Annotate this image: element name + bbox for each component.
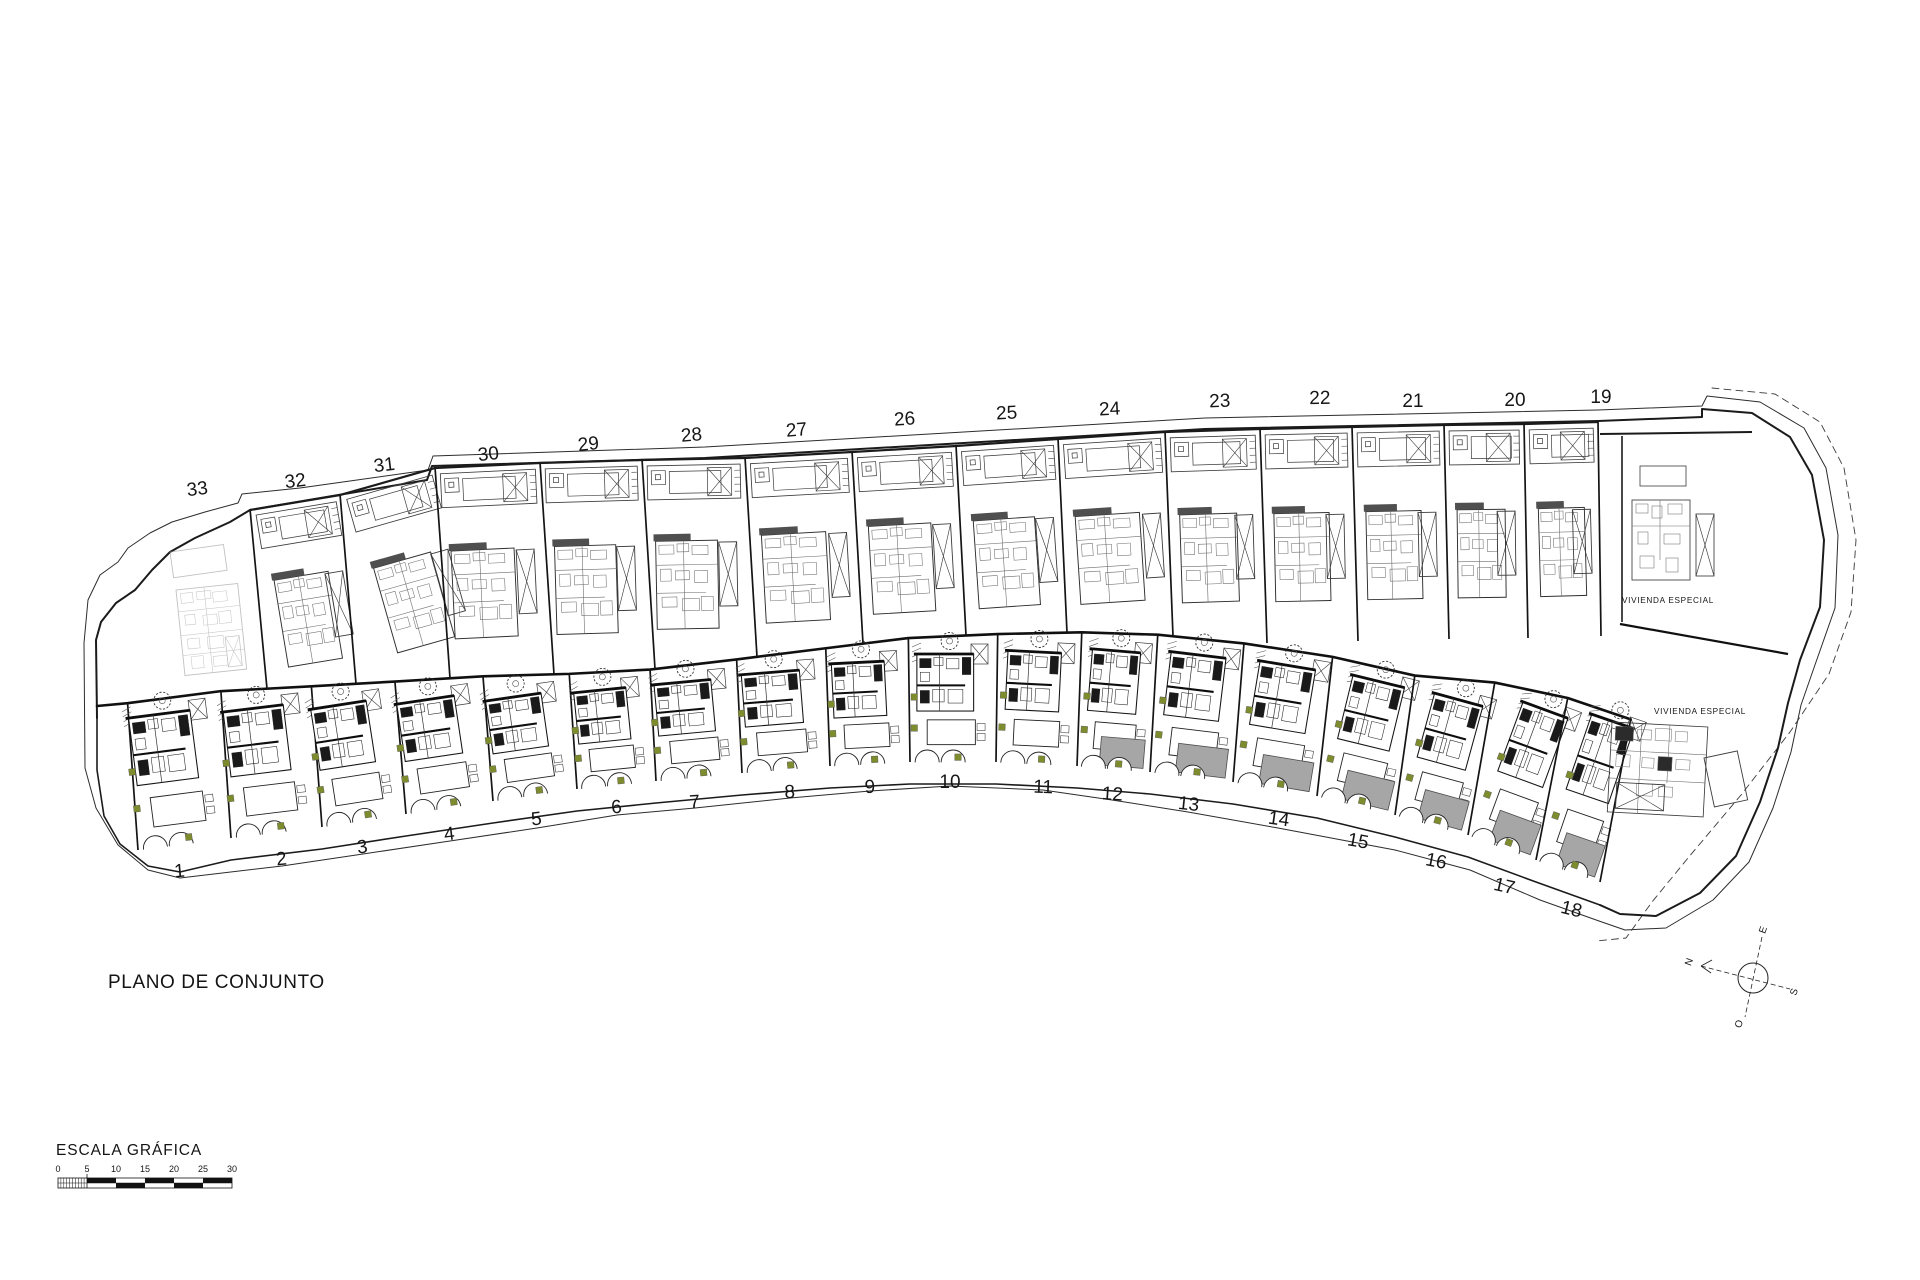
- pool-skimmer: [381, 775, 390, 783]
- room: [701, 596, 713, 610]
- line: [431, 549, 466, 615]
- house-glyph: [1272, 506, 1331, 602]
- plot-number-25: 25: [996, 402, 1018, 424]
- room: [1293, 516, 1304, 524]
- plot-number-33: 33: [186, 478, 210, 501]
- room: [1117, 543, 1131, 556]
- lower-plot-13: [1151, 630, 1242, 781]
- plot-divider: [1598, 421, 1601, 636]
- pool: [279, 510, 328, 539]
- plot-number-8: 8: [784, 782, 796, 804]
- spa: [261, 517, 277, 533]
- gate-marker: [911, 725, 918, 732]
- pool: [170, 544, 227, 577]
- room: [1198, 544, 1211, 553]
- entry-hatch: [1167, 645, 1176, 650]
- line: [430, 488, 436, 490]
- house-glyph: [866, 516, 936, 615]
- gate-marker: [277, 822, 284, 829]
- pool-terrace: [256, 502, 342, 549]
- plot-number-9: 9: [864, 777, 875, 798]
- terrace-outline: [1063, 438, 1162, 478]
- room: [909, 553, 923, 566]
- entry-hatch: [1089, 643, 1098, 648]
- shape: [553, 477, 558, 482]
- room: [1315, 569, 1326, 583]
- room: [962, 657, 971, 674]
- pool-terrace: [440, 469, 537, 507]
- pool-terrace: [1063, 438, 1162, 478]
- house-glyph: [971, 510, 1041, 609]
- gate-marker: [185, 833, 192, 840]
- tree-icon-center: [947, 638, 953, 644]
- terrace-outline: [440, 469, 537, 507]
- room: [1676, 759, 1691, 770]
- spa: [1361, 437, 1375, 451]
- spa: [651, 471, 665, 485]
- line: [331, 508, 337, 509]
- shape: [1537, 439, 1542, 444]
- room: [1398, 516, 1412, 525]
- gate-marker: [317, 786, 324, 793]
- room: [322, 627, 335, 643]
- gate-marker: [312, 753, 319, 760]
- line: [1366, 535, 1421, 536]
- hedge-arc: [142, 834, 167, 849]
- room: [872, 529, 888, 539]
- line: [181, 629, 243, 635]
- gate-marker: [1358, 797, 1366, 805]
- room: [494, 733, 505, 746]
- plot-divider: [1317, 657, 1333, 796]
- tree-icon-center: [1036, 636, 1042, 642]
- room: [1183, 518, 1197, 527]
- pool-terrace: [545, 466, 638, 503]
- room: [1370, 539, 1380, 551]
- room: [905, 528, 922, 538]
- gate-marker: [575, 755, 582, 762]
- tree-icon: [1112, 629, 1130, 647]
- room: [874, 553, 885, 566]
- shape: [449, 482, 454, 487]
- plot-number-6: 6: [610, 797, 622, 819]
- room: [488, 553, 505, 563]
- plot-number-31: 31: [373, 454, 397, 477]
- tree-icon-center: [253, 692, 260, 699]
- line: [1559, 508, 1561, 596]
- room: [1640, 556, 1654, 568]
- pool-skimmer: [635, 747, 644, 755]
- gate-marker: [227, 795, 234, 802]
- hedge-arc: [496, 785, 521, 800]
- tree-icon-center: [770, 656, 776, 662]
- pool: [1013, 719, 1060, 747]
- pool: [1192, 442, 1240, 465]
- line: [1540, 560, 1577, 561]
- scale-tick-0: 0: [55, 1164, 60, 1174]
- room: [591, 550, 607, 559]
- pool-skimmer: [808, 732, 817, 740]
- room: [1352, 681, 1365, 694]
- pool: [844, 723, 890, 749]
- gate-marker: [1159, 697, 1166, 704]
- line: [896, 525, 901, 613]
- gate-marker: [1193, 768, 1200, 775]
- gate-marker: [911, 694, 918, 701]
- room: [378, 567, 394, 580]
- room: [1094, 654, 1104, 665]
- room: [1485, 514, 1498, 523]
- room: [799, 537, 816, 547]
- room: [185, 614, 196, 625]
- plot-divider: [745, 457, 757, 657]
- room: [1081, 543, 1093, 556]
- house-roof-bar: [1177, 507, 1211, 515]
- house-glyph: [1607, 722, 1708, 817]
- line: [399, 561, 423, 646]
- room: [1568, 538, 1578, 550]
- pool-terrace: [1265, 433, 1348, 469]
- lower-plot-8: [734, 648, 823, 773]
- room: [1553, 538, 1564, 547]
- room: [417, 584, 432, 599]
- hedge-arc: [686, 764, 711, 778]
- gate-marker: [133, 805, 140, 812]
- hedge-arc: [235, 823, 260, 838]
- room: [747, 707, 757, 719]
- room: [1021, 573, 1034, 588]
- house-roof-bar: [1536, 501, 1564, 509]
- entry-hatch: [827, 658, 836, 662]
- pool-skimmer: [977, 724, 985, 731]
- plot-divider: [1165, 431, 1173, 636]
- compass-label-o: O: [1733, 1018, 1746, 1029]
- site-plan-drawing: 1234567891011121314151617183231302928272…: [0, 0, 1920, 1280]
- line: [1615, 782, 1664, 810]
- upper-plot-24: [1058, 432, 1176, 605]
- entry-hatch: [826, 653, 835, 657]
- garage-pergola: [431, 549, 466, 615]
- pool-skimmer: [468, 764, 477, 772]
- room: [282, 606, 293, 619]
- room: [1573, 563, 1582, 577]
- room: [196, 590, 211, 599]
- gate-marker: [450, 798, 457, 805]
- room: [1277, 517, 1291, 526]
- tree-icon: [1195, 633, 1214, 652]
- line: [1077, 536, 1141, 540]
- plan-title: PLANO DE CONJUNTO: [108, 972, 325, 994]
- site-plan-canvas: 1234567891011121314151617183231302928272…: [0, 0, 1920, 1280]
- house-roof-bar: [552, 538, 589, 546]
- plot-divider: [1150, 635, 1158, 772]
- shape: [1365, 442, 1370, 447]
- spa: [862, 462, 877, 477]
- tree-icon: [676, 660, 695, 679]
- line: [870, 547, 932, 551]
- plot-number-7: 7: [689, 792, 701, 814]
- house-glyph: [126, 710, 199, 786]
- room: [138, 760, 150, 776]
- upper-plot-31: [340, 468, 481, 656]
- house-glyph: [571, 688, 631, 745]
- tree-icon-center: [424, 683, 431, 690]
- gate-marker: [1115, 760, 1122, 767]
- house-glyph: [1161, 651, 1226, 721]
- pool-skimmer: [891, 735, 899, 742]
- room: [492, 578, 506, 591]
- line: [683, 541, 685, 629]
- house-outline: [1274, 513, 1331, 602]
- plot-number-29: 29: [577, 433, 600, 456]
- room: [408, 559, 425, 572]
- room: [1129, 656, 1138, 675]
- plot-number-26: 26: [893, 408, 916, 430]
- room: [1199, 517, 1210, 525]
- pool-skimmer: [1060, 736, 1068, 743]
- plot-divider: [908, 638, 910, 762]
- room: [920, 659, 931, 668]
- room: [1050, 656, 1059, 674]
- terrace-outline: [1265, 433, 1348, 469]
- plot-divider: [642, 459, 655, 669]
- house-outline: [973, 517, 1040, 609]
- pool-terrace: [1357, 431, 1440, 467]
- plot-divider: [250, 509, 267, 689]
- plot-number-11: 11: [1033, 777, 1053, 799]
- pool-skimmer: [553, 755, 562, 763]
- upper-plot-25: [956, 439, 1069, 610]
- room: [765, 538, 781, 548]
- room: [1280, 569, 1294, 579]
- gate-marker: [1246, 706, 1253, 713]
- room: [1638, 532, 1648, 544]
- gate-marker: [1038, 756, 1045, 763]
- scale-tick-10: 10: [111, 1164, 121, 1174]
- house-glyph: [1073, 505, 1145, 604]
- plot-number-19: 19: [1590, 387, 1611, 408]
- room: [616, 691, 625, 707]
- spa: [1068, 448, 1083, 463]
- gate-marker: [651, 719, 658, 726]
- room: [288, 633, 303, 645]
- room: [1172, 657, 1184, 668]
- plot-number-13: 13: [1177, 793, 1200, 816]
- room: [454, 554, 470, 564]
- plot-number-10: 10: [939, 772, 960, 793]
- plot-divider: [1352, 426, 1358, 641]
- room: [232, 752, 243, 767]
- gate-marker: [1327, 755, 1335, 763]
- hedge-arc: [351, 807, 377, 823]
- room: [1461, 538, 1469, 550]
- upper-plot-20: [1444, 424, 1526, 598]
- room: [320, 746, 331, 761]
- terrace-outline: [857, 452, 953, 491]
- scale-segment-black: [203, 1178, 232, 1183]
- room: [1010, 655, 1021, 665]
- tree-icon: [593, 668, 612, 687]
- room: [1009, 522, 1025, 532]
- line: [1205, 514, 1208, 602]
- hedge-arc: [325, 811, 351, 827]
- spa: [966, 455, 981, 470]
- room: [203, 614, 218, 625]
- line: [335, 528, 341, 529]
- room: [1493, 565, 1502, 579]
- pool-skimmer: [891, 726, 899, 733]
- compass-axis-ns: [1701, 966, 1790, 989]
- pool-skimmer: [1219, 737, 1228, 745]
- room: [657, 688, 669, 697]
- pool: [243, 782, 297, 816]
- entry-hatch: [1004, 639, 1013, 643]
- line: [1180, 537, 1237, 539]
- line: [1457, 533, 1505, 534]
- plot-number-17: 17: [1492, 874, 1517, 899]
- pool: [589, 745, 635, 772]
- pool-skimmer: [1462, 788, 1472, 797]
- room: [1009, 688, 1018, 701]
- hedge-arc: [1001, 750, 1026, 763]
- shape: [1457, 440, 1462, 445]
- pool-skimmer: [1305, 750, 1314, 758]
- house-roof-bar: [653, 534, 690, 542]
- terrace-outline: [647, 464, 741, 500]
- pool-skimmer: [1061, 725, 1069, 732]
- room: [600, 601, 612, 615]
- room: [1125, 569, 1138, 584]
- compass-label-s: S: [1788, 987, 1801, 997]
- line: [1275, 565, 1319, 566]
- shape: [357, 504, 363, 510]
- house-glyph: [483, 693, 549, 754]
- line: [1391, 511, 1393, 599]
- upper-plot-26: [852, 446, 965, 615]
- room: [1223, 569, 1234, 583]
- plot-street-fence: [1444, 424, 1524, 425]
- shape: [1704, 751, 1748, 807]
- pool: [669, 470, 721, 493]
- hedge-arc: [409, 798, 435, 813]
- pool: [757, 729, 808, 756]
- scale-tick-20: 20: [169, 1164, 179, 1174]
- gate-marker: [740, 738, 747, 745]
- tree-icon-center: [1118, 635, 1124, 641]
- room: [660, 569, 671, 581]
- compass-rose: NESO: [1683, 925, 1801, 1030]
- line: [428, 481, 434, 483]
- room: [1213, 518, 1228, 527]
- spa: [352, 499, 369, 516]
- plot-number-1: 1: [173, 861, 185, 883]
- compass-north-arrow: [1701, 966, 1711, 973]
- gate-marker: [223, 760, 230, 767]
- hedge-arc: [581, 774, 606, 788]
- room: [1091, 688, 1100, 702]
- gate-marker: [1084, 693, 1091, 700]
- hedge-arc: [746, 759, 771, 773]
- shape: [759, 472, 764, 477]
- lower-plot-10: [911, 633, 988, 763]
- pool-skimmer: [721, 748, 730, 756]
- house-outline: [1366, 511, 1423, 600]
- room: [1652, 506, 1662, 518]
- shape: [1072, 453, 1077, 458]
- gate-marker: [364, 811, 371, 818]
- plot-number-14: 14: [1267, 808, 1291, 832]
- line: [556, 597, 605, 598]
- pool-terrace: [857, 452, 953, 491]
- lower-plot-9: [825, 639, 902, 766]
- room: [874, 665, 883, 682]
- room: [576, 549, 588, 557]
- gate-marker: [999, 724, 1006, 731]
- plot-number-21: 21: [1402, 391, 1423, 412]
- gate-marker: [536, 786, 543, 793]
- line: [604, 469, 629, 498]
- room: [1013, 547, 1026, 560]
- line: [1001, 519, 1007, 607]
- plot-number-18: 18: [1559, 897, 1585, 922]
- house-roof-bar: [370, 552, 406, 568]
- house-roof-bar: [1272, 506, 1305, 514]
- plot-divider: [540, 462, 554, 674]
- room: [1472, 540, 1483, 549]
- room: [982, 575, 997, 586]
- room: [1401, 541, 1413, 553]
- room: [277, 582, 292, 593]
- room: [1615, 726, 1634, 741]
- gate-marker: [871, 756, 878, 763]
- garage-pergola: [516, 549, 537, 614]
- pool-skimmer: [206, 806, 215, 814]
- plot-number-32: 32: [284, 470, 308, 493]
- room: [677, 544, 689, 552]
- gate-marker: [1155, 731, 1162, 738]
- entry-hatch: [1350, 663, 1360, 669]
- room: [577, 696, 588, 705]
- room: [660, 716, 670, 728]
- plot-number-22: 22: [1309, 388, 1331, 409]
- line: [453, 601, 503, 603]
- line: [1560, 431, 1585, 460]
- room: [307, 578, 322, 589]
- pool-skimmer: [977, 733, 985, 740]
- room: [1658, 756, 1673, 771]
- house-outline: [554, 545, 618, 635]
- room: [1097, 544, 1112, 554]
- plot-divider: [996, 634, 998, 762]
- plot-street-fence: [642, 458, 745, 460]
- compass-label-n: N: [1683, 957, 1696, 968]
- line: [1667, 725, 1670, 783]
- plot-divider: [1077, 632, 1082, 766]
- pool-terrace: [347, 475, 442, 532]
- garage-pergola: [1572, 509, 1592, 573]
- upper-plot-32: [250, 495, 367, 669]
- room: [394, 617, 410, 631]
- plot-number-23: 23: [1209, 391, 1231, 413]
- room: [877, 581, 893, 592]
- line: [283, 624, 326, 631]
- room: [994, 549, 1008, 559]
- house-roof-bar: [1455, 503, 1484, 510]
- room: [675, 571, 689, 580]
- compass-label-e: E: [1757, 925, 1770, 935]
- house-glyph: [308, 701, 376, 771]
- line: [452, 572, 515, 575]
